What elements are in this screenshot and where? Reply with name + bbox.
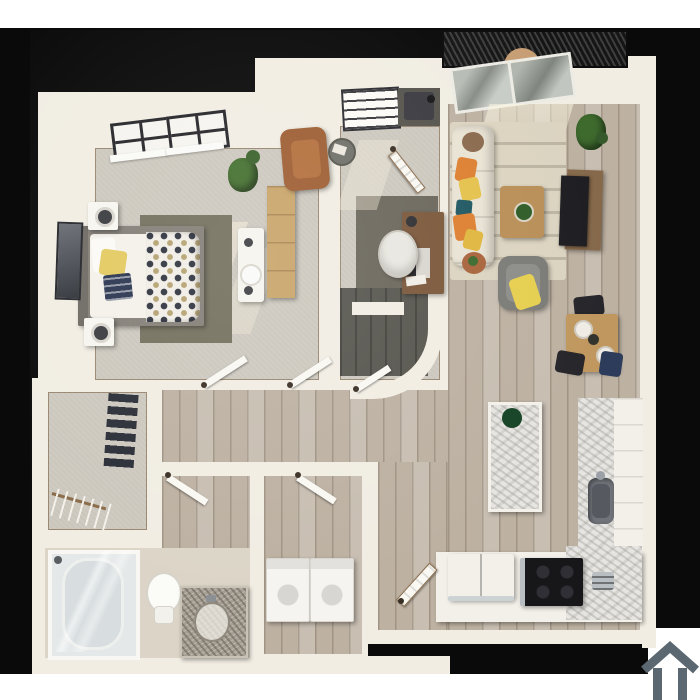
- living-plant-leaf: [596, 132, 608, 144]
- shower-glass-glare: [48, 550, 132, 652]
- door-hinge: [353, 386, 359, 392]
- vanity-sink: [194, 602, 230, 642]
- pouf: [462, 132, 484, 152]
- sliding-glass-door: [507, 52, 577, 106]
- refrigerator: [448, 554, 514, 600]
- hallway-floor: [162, 390, 448, 462]
- dining-chair: [554, 350, 585, 377]
- bed-throw-navy: [103, 273, 134, 302]
- centerpiece: [588, 334, 599, 345]
- door-hinge: [201, 382, 207, 388]
- wall-art: [55, 222, 84, 301]
- washer: [266, 558, 310, 622]
- bedroom-plant-leaf: [246, 150, 260, 164]
- pillow-yellow: [458, 176, 482, 202]
- laptop-base: [416, 248, 430, 278]
- office-chair: [378, 230, 418, 278]
- door-hinge: [287, 382, 293, 388]
- dresser: [267, 186, 295, 298]
- entry-threshold-shadow: [368, 644, 642, 656]
- door-hinge: [165, 472, 171, 478]
- island-plant: [502, 408, 522, 428]
- desk-lamp: [406, 216, 417, 227]
- alcove-cap-wall: [352, 302, 404, 315]
- stove: [520, 558, 583, 606]
- toilet-base: [154, 606, 174, 624]
- water-heater-pipe: [427, 95, 435, 103]
- house-logo-icon: [640, 638, 700, 700]
- vanity-item: [244, 286, 253, 295]
- pouf-plant: [468, 256, 478, 266]
- kitchen-cabinets-right: [612, 398, 643, 548]
- sink-basin: [592, 484, 610, 518]
- shoe-rack: [103, 393, 138, 471]
- vanity-item: [244, 238, 253, 247]
- vanity-stool: [240, 264, 262, 286]
- toaster: [592, 572, 614, 590]
- floor-plan-image: [0, 0, 700, 700]
- coffee-table-plant: [514, 202, 534, 222]
- tv-screen: [559, 176, 589, 247]
- faucet: [596, 471, 605, 480]
- lamp: [91, 323, 111, 343]
- dryer: [310, 558, 354, 622]
- leather-armchair-seat: [290, 139, 321, 179]
- chair-cushion-navy: [598, 351, 623, 378]
- lamp: [95, 207, 115, 227]
- door-hinge: [390, 146, 396, 152]
- door-hinge: [295, 472, 301, 478]
- linen-shelves: [341, 87, 401, 132]
- vanity-faucet: [206, 595, 216, 602]
- fridge-handle: [448, 596, 514, 601]
- door-hinge: [398, 598, 404, 604]
- shower-head: [54, 556, 62, 564]
- bed-duvet: [146, 232, 200, 322]
